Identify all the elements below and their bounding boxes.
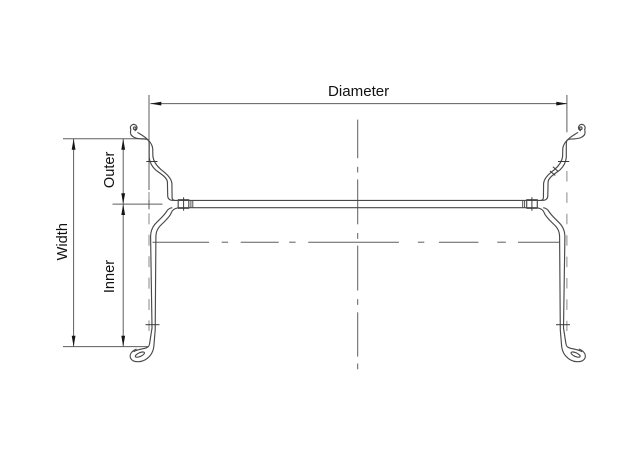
svg-text:Width: Width [55,223,71,260]
svg-text:Diameter: Diameter [328,83,389,100]
svg-text:Inner: Inner [102,260,118,293]
svg-text:Outer: Outer [102,152,118,189]
